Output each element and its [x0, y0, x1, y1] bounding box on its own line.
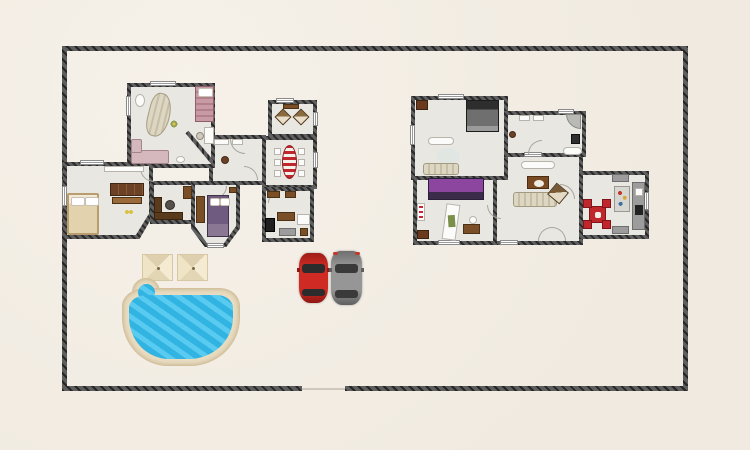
window [150, 81, 176, 86]
gate-opening [302, 388, 345, 390]
wardrobe[interactable] [196, 196, 205, 223]
desk-chair[interactable] [469, 216, 477, 224]
bench-white[interactable] [521, 161, 555, 169]
table-top [534, 180, 544, 187]
rear-window [335, 290, 359, 298]
window [126, 96, 131, 116]
round-rug [436, 148, 460, 164]
red-chair[interactable] [602, 220, 611, 229]
boundary-wall-bottom-left [62, 386, 302, 391]
parasol-tip [192, 267, 195, 270]
small-desk[interactable] [463, 224, 480, 234]
counter-sink [635, 188, 643, 196]
window [500, 240, 518, 245]
oval-dining-table[interactable] [282, 145, 297, 179]
sink[interactable] [533, 115, 544, 121]
corner-stove[interactable] [417, 230, 429, 239]
round-side-table[interactable] [221, 156, 229, 164]
double-bed-gray[interactable] [466, 100, 499, 132]
red-chair[interactable] [583, 199, 592, 208]
table-plant [448, 215, 456, 227]
mirror [361, 268, 364, 272]
console-table[interactable] [283, 104, 299, 109]
bathtub[interactable] [563, 147, 582, 155]
double-bed-beige[interactable] [67, 193, 99, 235]
cabinet[interactable] [183, 186, 192, 199]
parasol[interactable] [177, 254, 208, 281]
bed-runner [467, 126, 498, 131]
stool[interactable] [300, 228, 308, 236]
parasol-tip [157, 267, 160, 270]
l-desk-horizontal[interactable] [154, 212, 183, 220]
corner-sofa-pink-return[interactable] [131, 139, 142, 153]
dresser-base[interactable] [112, 197, 142, 204]
plant[interactable] [170, 120, 178, 128]
oven[interactable] [265, 218, 275, 232]
boundary-wall-top [62, 46, 688, 51]
window [313, 112, 318, 126]
floor-lamp[interactable] [135, 94, 145, 107]
table-center [595, 212, 601, 218]
double-bed-violet[interactable] [207, 195, 229, 237]
sink-unit[interactable] [279, 228, 296, 236]
floor-mat [612, 174, 629, 182]
rear-window [302, 289, 324, 296]
bench-white[interactable] [428, 137, 454, 145]
windshield [302, 264, 324, 273]
floor-mat [612, 226, 629, 234]
double-bed-purple[interactable] [428, 178, 484, 200]
counter[interactable] [297, 214, 310, 225]
kitchen-island[interactable] [614, 186, 630, 212]
tail-light [355, 252, 360, 255]
bench[interactable] [232, 139, 243, 145]
coffee-table[interactable] [527, 176, 549, 189]
floor-plan-canvas [0, 0, 750, 450]
counter-stove [635, 205, 643, 215]
corner-stove[interactable] [416, 100, 428, 110]
parasol[interactable] [142, 254, 173, 281]
window [438, 94, 464, 99]
window [410, 125, 415, 145]
drawer-dresser[interactable] [110, 183, 144, 196]
counter-right[interactable] [632, 182, 645, 230]
shelf-unit[interactable] [417, 203, 425, 221]
mirror [329, 268, 332, 272]
window [207, 243, 224, 248]
bar-table[interactable] [285, 191, 296, 198]
pillow [198, 88, 213, 97]
toilet[interactable] [571, 134, 580, 144]
pillow [85, 197, 99, 206]
desk[interactable] [204, 127, 214, 144]
dining-chair[interactable] [298, 159, 305, 166]
sofa-beige[interactable] [423, 163, 459, 175]
boundary-wall-bottom-right [345, 386, 688, 391]
nightstand[interactable] [229, 187, 237, 193]
bench[interactable] [214, 139, 229, 145]
dining-chair[interactable] [274, 159, 281, 166]
dining-chair[interactable] [274, 170, 281, 177]
pillow [220, 198, 230, 206]
flowers[interactable] [124, 208, 134, 216]
kitchen-cabinet[interactable] [277, 212, 295, 221]
door-arc [250, 140, 251, 141]
sink[interactable] [519, 115, 530, 121]
red-chair[interactable] [583, 220, 592, 229]
mirror [297, 268, 300, 272]
red-car[interactable] [299, 253, 328, 303]
bar-table[interactable] [267, 191, 280, 198]
office-chair[interactable] [165, 200, 175, 210]
gray-car[interactable] [331, 251, 362, 305]
wall-shelf[interactable] [104, 166, 144, 172]
pillow [71, 197, 85, 206]
window [313, 152, 318, 168]
desk-chair[interactable] [196, 132, 204, 140]
shelf-marks [419, 206, 423, 218]
pillow [210, 198, 220, 206]
single-bed-pink[interactable] [195, 86, 214, 122]
windshield [335, 264, 359, 273]
window [80, 160, 104, 165]
window [276, 98, 294, 103]
boundary-wall-right [683, 46, 688, 391]
window [438, 240, 460, 245]
dining-chair[interactable] [274, 148, 281, 155]
red-chair[interactable] [602, 199, 611, 208]
side-table-round[interactable] [509, 131, 516, 138]
dining-chair[interactable] [298, 170, 305, 177]
dining-chair[interactable] [298, 148, 305, 155]
side-table-round[interactable] [176, 156, 185, 163]
tail-light [333, 252, 338, 255]
